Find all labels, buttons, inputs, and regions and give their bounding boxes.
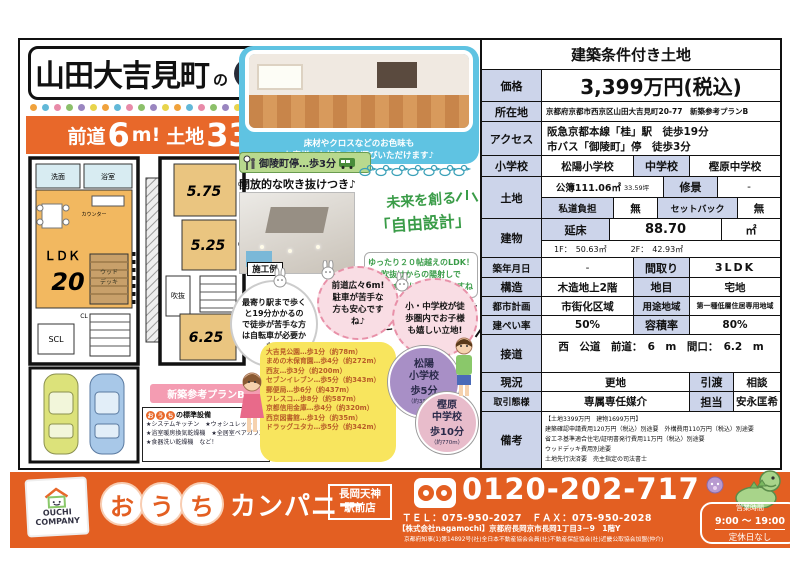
girl-icon	[236, 370, 268, 440]
genkyo-label: 現況	[482, 373, 542, 392]
built-value: -	[542, 258, 634, 278]
dot	[150, 104, 157, 111]
city-plan-value: 市街化区域	[542, 297, 634, 316]
company-logo: OUCHI COMPANY	[25, 476, 90, 537]
torihiki-value: 専属専任媒介	[542, 392, 690, 412]
distance-list-box: 大吉見公園…歩1分（約78m）まめの木保育園…歩4分（約272m）西友…歩3分（…	[260, 342, 396, 462]
distance-item: 西友…歩3分（約200m）	[266, 367, 390, 376]
school-distance: （約770m）	[431, 438, 463, 446]
yoto-label: 用途地域	[634, 297, 690, 316]
biko-line: ウッドデッキ費用別途要	[545, 445, 611, 455]
boy-icon	[450, 336, 478, 398]
dot	[102, 104, 109, 111]
hours-label: 営業時間	[736, 503, 764, 513]
dot	[126, 104, 133, 111]
distance-item: セブンイレブン…歩5分（約343m）	[266, 376, 390, 385]
city-plan-label: 都市計画	[482, 297, 542, 316]
equip-brand-circle: ち	[166, 411, 175, 420]
distance-item: ドラッグユタカ…歩5分（約342m）	[266, 423, 390, 432]
dot	[42, 104, 49, 111]
skylight	[265, 207, 329, 233]
junior-high-circle: 樫原 中学校 歩10分 （約770m）	[416, 392, 478, 454]
access-line: 市バス「御陵町」停 徒歩3分	[547, 139, 691, 154]
shukei-label: 修景	[664, 177, 718, 198]
svg-text:5.75: 5.75	[187, 184, 222, 200]
svg-text:デッキ: デッキ	[100, 278, 118, 286]
phone-number: 0120-202-717	[462, 472, 700, 506]
school-name: 中学校	[432, 412, 462, 424]
ldk-note-line: ゆったり２０帖越えのLDK！	[368, 257, 474, 269]
kenpei-label: 建ぺい率	[482, 316, 542, 335]
junior-value: 樫原中学校	[690, 156, 780, 177]
biko-label: 備考	[482, 412, 542, 468]
land-label: 土地	[482, 177, 542, 219]
footer-brand-circle: ち	[180, 482, 224, 526]
dot	[66, 104, 73, 111]
footer-brand-circle: う	[140, 482, 184, 526]
floor-area-unit: ㎡	[722, 219, 780, 241]
elementary-label: 小学校	[482, 156, 542, 177]
road-value: 西 公道 前道： 6 m 間口： 6.2 m	[542, 335, 780, 373]
freedial-phone-icon	[414, 478, 456, 508]
table-header: 建築条件付き土地	[482, 40, 780, 70]
biko-line: 【土地3399万円 建物1699万円】	[545, 415, 642, 425]
svg-text:20: 20	[51, 268, 84, 296]
dot	[138, 104, 145, 111]
holiday-note: 定休日なし	[715, 529, 785, 543]
distance-item: 京都信用金庫…歩4分（約320m）	[266, 404, 390, 413]
rabbit-icon	[272, 268, 288, 288]
torihiki-label: 取引態様	[482, 392, 542, 412]
banner-text: 土地	[166, 122, 204, 149]
company-address-line: 【株式会社nagamochi】京都府長岡京市長岡1丁目3－9 1階Y	[398, 523, 620, 534]
footer-band: OUCHI COMPANY お う ち カンパニー 長岡天神 駅前店 0120-…	[10, 472, 790, 548]
building-label: 建物	[482, 219, 542, 258]
house-logo-icon	[41, 486, 72, 510]
logo-text: COMPANY	[35, 517, 80, 528]
biko-line: 土地先行決済要 売主指定の司法書士	[545, 455, 647, 465]
tanto-value: 安永匡希	[734, 392, 780, 412]
photo-window	[257, 64, 303, 90]
price-label: 価格	[482, 70, 542, 102]
school-name: 樫原	[432, 400, 462, 412]
kenpei-value: 50%	[542, 316, 634, 335]
dot	[30, 104, 37, 111]
svg-text:カウンター: カウンター	[81, 211, 106, 218]
branch-line: 駅前店	[344, 502, 376, 516]
svg-text:CL: CL	[80, 313, 88, 320]
hours-value: 9:00 ～ 19:00	[715, 513, 785, 527]
footer-brand-circle: お	[100, 482, 144, 526]
interior-photo-frame: 床材やクロスなどのお色味も お客様のお好みでお選びいただけます♪	[239, 46, 479, 164]
dot	[78, 104, 85, 111]
dot	[162, 104, 169, 111]
dot	[198, 104, 205, 111]
photo-floor	[249, 95, 469, 128]
floors-detail: 1F： 50.63㎡ 2F： 42.93㎡	[542, 241, 780, 258]
structure-value: 木造地上2階	[542, 278, 634, 297]
dot	[222, 104, 229, 111]
interior-photo	[245, 50, 473, 132]
spec-table: 建築条件付き土地 価格 3,399万円(税込) 所在地 京都府京都市西京区山田大…	[480, 40, 780, 468]
flyer-left-pane: 山田大吉見町 の お う ち 前道 6 m! 土地 33 坪越え!	[20, 40, 481, 468]
car-blue-icon	[90, 374, 124, 454]
hikiwatashi-value: 相談	[734, 373, 780, 392]
chimoku-label: 地目	[634, 278, 690, 297]
distance-item: フレスコ…歩8分（約587m）	[266, 395, 390, 404]
dot	[114, 104, 121, 111]
school-walk-time: 歩10分	[430, 423, 464, 438]
floor-area-value: 88.70	[610, 219, 722, 241]
rabbit-icon	[394, 272, 410, 292]
elementary-value: 松陽小学校	[542, 156, 634, 177]
downlight	[288, 249, 292, 253]
distance-item: 西京図書館…歩1分（約35m）	[266, 414, 390, 423]
rabbit-icon	[320, 260, 336, 280]
svg-text:6.25: 6.25	[189, 330, 224, 346]
built-label: 築年月日	[482, 258, 542, 278]
private-road-label: 私道負担	[542, 198, 614, 219]
equip-brand-circle: う	[156, 411, 165, 420]
school-name: 松陽	[409, 359, 439, 371]
bus-stop-icon	[243, 155, 257, 171]
dot	[186, 104, 193, 111]
equipment-title-text: の標準設備	[176, 410, 211, 420]
location-value: 京都府京都市西京区山田大吉見町20-77 新築参考プランB	[542, 102, 780, 122]
junior-label: 中学校	[634, 156, 690, 177]
mole-icon	[706, 476, 724, 494]
biko-value: 【土地3399万円 建物1699万円】建築確認申請費用120万円（税込）別途要 …	[542, 412, 780, 468]
svg-text:洗面: 洗面	[51, 172, 65, 181]
bus-icon	[338, 157, 356, 169]
land-area: 公簿111.06㎡	[556, 180, 621, 194]
downlight	[316, 245, 320, 249]
tel-fax-line: ＴＥＬ：075-950-2027 ＦＡＸ：075-950-2028	[402, 510, 652, 524]
free-design-callout: 未来を創る 「自由設計」	[364, 186, 481, 238]
flyer-sheet: 山田大吉見町 の お う ち 前道 6 m! 土地 33 坪越え!	[18, 38, 782, 470]
photo-kitchen	[377, 62, 417, 88]
banner-number: 6	[108, 119, 130, 151]
distance-item: まめの木保育園…歩4分（約272m）	[266, 357, 390, 366]
banner-text: 前道	[68, 122, 106, 149]
biko-line: 建築確認申請費用120万円（税込）別途要 外構費用110万円（税込）別途要	[545, 425, 754, 435]
access-line: 阪急京都本線「桂」駅 徒歩19分	[547, 124, 709, 139]
banner-text: m!	[132, 124, 160, 146]
sparkle-mark	[466, 190, 468, 200]
dot	[90, 104, 97, 111]
biko-line: 省エネ基準適合住宅/証明書発行費用11万円（税込）別途要	[545, 435, 705, 445]
dot	[54, 104, 61, 111]
madori-value: 3LDK	[690, 258, 780, 278]
downlight	[260, 245, 264, 249]
floor-area-label: 延床	[542, 219, 610, 241]
madori-label: 間取り	[634, 258, 690, 278]
dot	[174, 104, 181, 111]
title-particle: の	[213, 69, 228, 90]
structure-label: 構造	[482, 278, 542, 297]
yoseki-label: 容積率	[634, 316, 690, 335]
equip-brand-circle: お	[146, 411, 155, 420]
distance-item: 郵便局…歩6分（約437m）	[266, 386, 390, 395]
parking-plan	[28, 366, 140, 464]
private-road-value: 無	[614, 198, 658, 219]
branch-line: 長岡天神	[339, 488, 381, 502]
svg-text:ＬＤＫ: ＬＤＫ	[44, 249, 80, 263]
svg-text:5.25: 5.25	[191, 238, 226, 254]
svg-text:浴室: 浴室	[101, 172, 115, 181]
branch-name-box: 長岡天神 駅前店	[328, 484, 392, 520]
bird-doodles-icon	[359, 160, 471, 180]
void-note: 開放的な吹き抜けつき♪	[239, 176, 356, 192]
yoseki-value: 80%	[690, 316, 780, 335]
svg-text:SCL: SCL	[48, 335, 64, 344]
school-name: 小学校	[409, 371, 439, 383]
photo-caption-line: 床材やクロスなどのお色味も	[239, 139, 479, 150]
dot	[210, 104, 217, 111]
svg-text:ウッド: ウッド	[100, 268, 118, 276]
business-hours-bubble: 営業時間 9:00 ～ 19:00 定休日なし	[700, 502, 800, 544]
flyer-page: 山田大吉見町 の お う ち 前道 6 m! 土地 33 坪越え!	[0, 0, 800, 564]
license-line: 京都府知事(1)第14892号(社)全日本不動産協会会員(社)不動産保証協会(社…	[404, 534, 663, 543]
tanto-label: 担当	[690, 392, 734, 412]
access-label: アクセス	[482, 122, 542, 156]
bus-stop-bar: 御陵町停…歩3分	[239, 152, 371, 173]
land-tsubo: 33.59坪	[624, 182, 649, 192]
setback-value: 無	[738, 198, 780, 219]
road-label: 接道	[482, 335, 542, 373]
setback-label: セットバック	[658, 198, 738, 219]
genkyo-value: 更地	[542, 373, 690, 392]
chimoku-value: 宅地	[690, 278, 780, 297]
distance-item: 大吉見公園…歩1分（約78m）	[266, 348, 390, 357]
price-value: 3,399万円(税込)	[542, 70, 780, 102]
shukei-value: -	[718, 177, 780, 198]
brand-name: お う ち カンパニー	[100, 482, 365, 526]
bus-stop-text: 御陵町停…歩3分	[259, 155, 336, 170]
location-label: 所在地	[482, 102, 542, 122]
car-yellow-icon	[44, 374, 78, 454]
svg-text:吹抜: 吹抜	[171, 291, 185, 300]
page-title: 山田大吉見町	[35, 51, 209, 95]
floorplan-1f: 洗面 浴室 カウンター ＬＤＫ 20 ウッド デッキ SCL CL	[28, 156, 140, 366]
hikiwatashi-label: 引渡	[690, 373, 734, 392]
yoto-value: 第一種低層住居専用地域	[690, 297, 780, 316]
